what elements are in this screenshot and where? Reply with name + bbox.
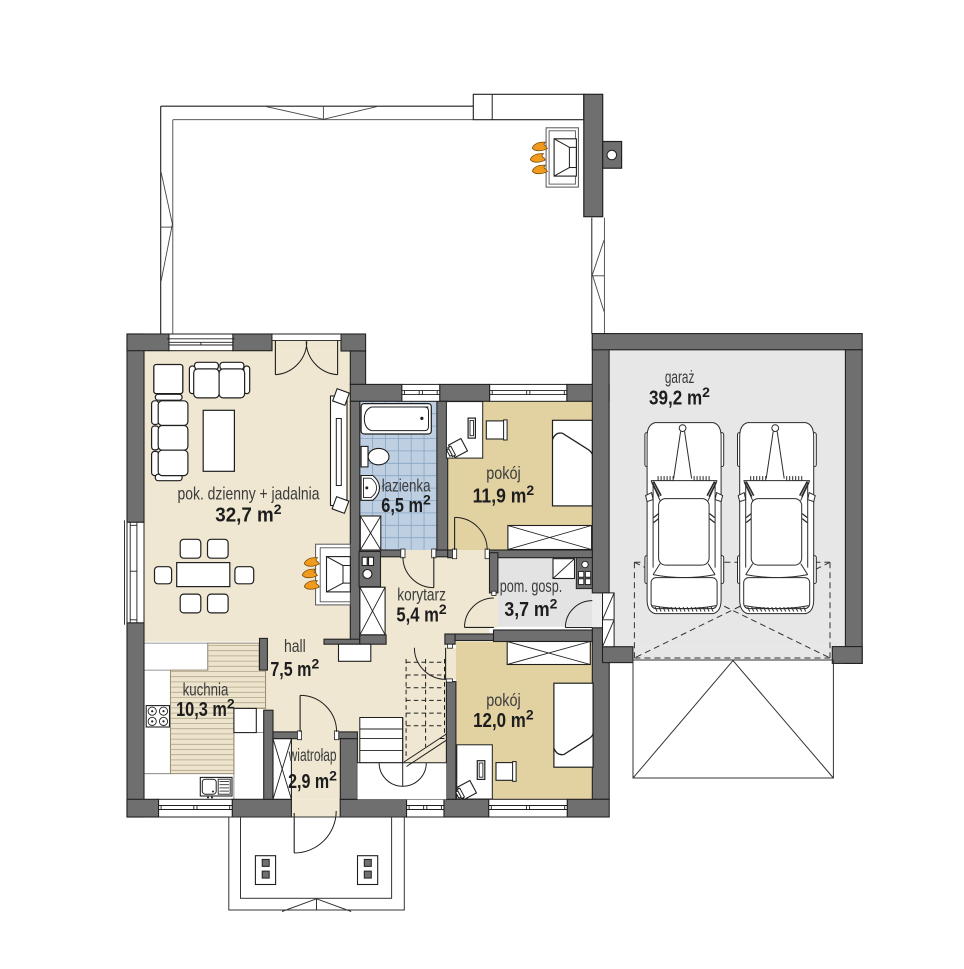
svg-text:kuchnia: kuchnia [183,679,229,699]
svg-text:3,7 m2: 3,7 m2 [504,596,557,622]
svg-text:pokój: pokój [486,690,521,710]
svg-text:12,0 m2: 12,0 m2 [473,707,534,733]
svg-text:pok. dzienny + jadalnia: pok. dzienny + jadalnia [178,484,320,504]
svg-text:garaż: garaż [665,367,695,387]
svg-text:10,3 m2: 10,3 m2 [176,695,235,721]
svg-text:pom. gosp.: pom. gosp. [500,576,563,596]
svg-text:pokój: pokój [486,463,521,483]
svg-text:wiatrołap: wiatrołap [288,745,337,765]
svg-text:32,7 m2: 32,7 m2 [215,501,282,527]
svg-text:39,2 m2: 39,2 m2 [649,384,710,410]
svg-text:11,9 m2: 11,9 m2 [473,482,535,508]
svg-text:hall: hall [284,636,306,656]
